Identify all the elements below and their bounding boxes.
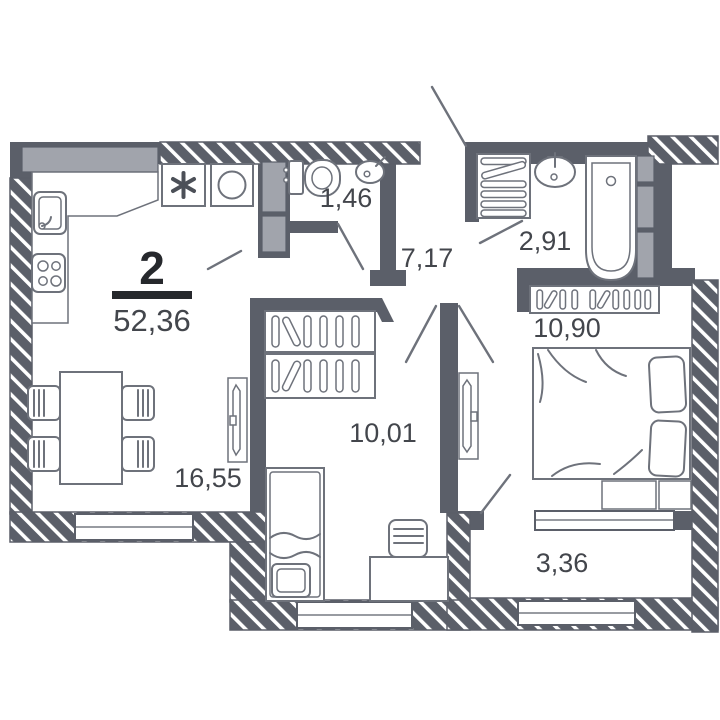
bathroom-fixtures (477, 153, 636, 280)
label-divider (112, 291, 192, 299)
dining-chair-icon (122, 437, 154, 471)
balcony-window (518, 601, 635, 625)
kitchen-sink-icon (34, 192, 66, 234)
desk-chair-icon (389, 520, 427, 557)
fridge-icon (162, 164, 205, 206)
washing-machine-icon (211, 164, 253, 206)
room2-window (297, 602, 412, 628)
dining-table (60, 372, 122, 484)
bathtub-icon (586, 156, 636, 280)
pillow-icon (649, 420, 687, 477)
room2-furniture (266, 468, 448, 601)
pillow-icon (649, 356, 687, 413)
floor-plan-page: 2 52,36 1,46 7,17 2,91 10,90 16,55 10,01… (0, 0, 720, 720)
living-room-window (75, 514, 193, 540)
bedroom-door-swing (459, 306, 493, 362)
bathroom-door-swing (480, 221, 522, 243)
dining-chair-icon (28, 437, 60, 471)
room-area-label-balcony: 3,36 (536, 548, 589, 578)
bed-bench (602, 481, 656, 509)
entrance-door-swing (432, 87, 466, 146)
room-area-label-kitchen-living: 16,55 (174, 463, 242, 493)
apartment-total-area: 52,36 (113, 303, 191, 338)
single-bed-icon (266, 468, 324, 601)
room2-door-swing (406, 306, 436, 362)
dining-chair-icon (28, 386, 60, 420)
floor-plan-svg: 2 52,36 1,46 7,17 2,91 10,90 16,55 10,01… (0, 0, 720, 720)
room2-wardrobe-top-icon (265, 311, 375, 352)
balcony-glazing (535, 511, 674, 530)
double-bed-icon (533, 348, 690, 479)
balcony-door-swing (481, 475, 510, 513)
living-tv-icon (228, 378, 247, 462)
room-area-label-wc: 1,46 (320, 183, 373, 213)
bedroom-tv-icon (459, 373, 478, 459)
apartment-rooms-count: 2 (139, 242, 165, 294)
bedroom-furniture (459, 348, 691, 509)
kitchen-upper-cabinet (22, 147, 158, 172)
room-area-label-room2: 10,01 (349, 418, 417, 448)
dining-chair-icon (122, 386, 154, 420)
room-area-label-bedroom: 10,90 (533, 313, 601, 343)
room2-wardrobe-bottom-icon (265, 354, 375, 398)
room-area-label-hallway: 7,17 (401, 243, 454, 273)
wc-door-swing (338, 224, 363, 269)
towel-radiator-icon (477, 154, 530, 218)
room-area-label-bathroom: 2,91 (519, 226, 572, 256)
kitchen-opening-swing (208, 251, 241, 269)
desk (370, 557, 448, 601)
nightstand (659, 481, 691, 509)
bedroom-wardrobe-icon (530, 286, 659, 313)
stove-icon (32, 254, 65, 292)
